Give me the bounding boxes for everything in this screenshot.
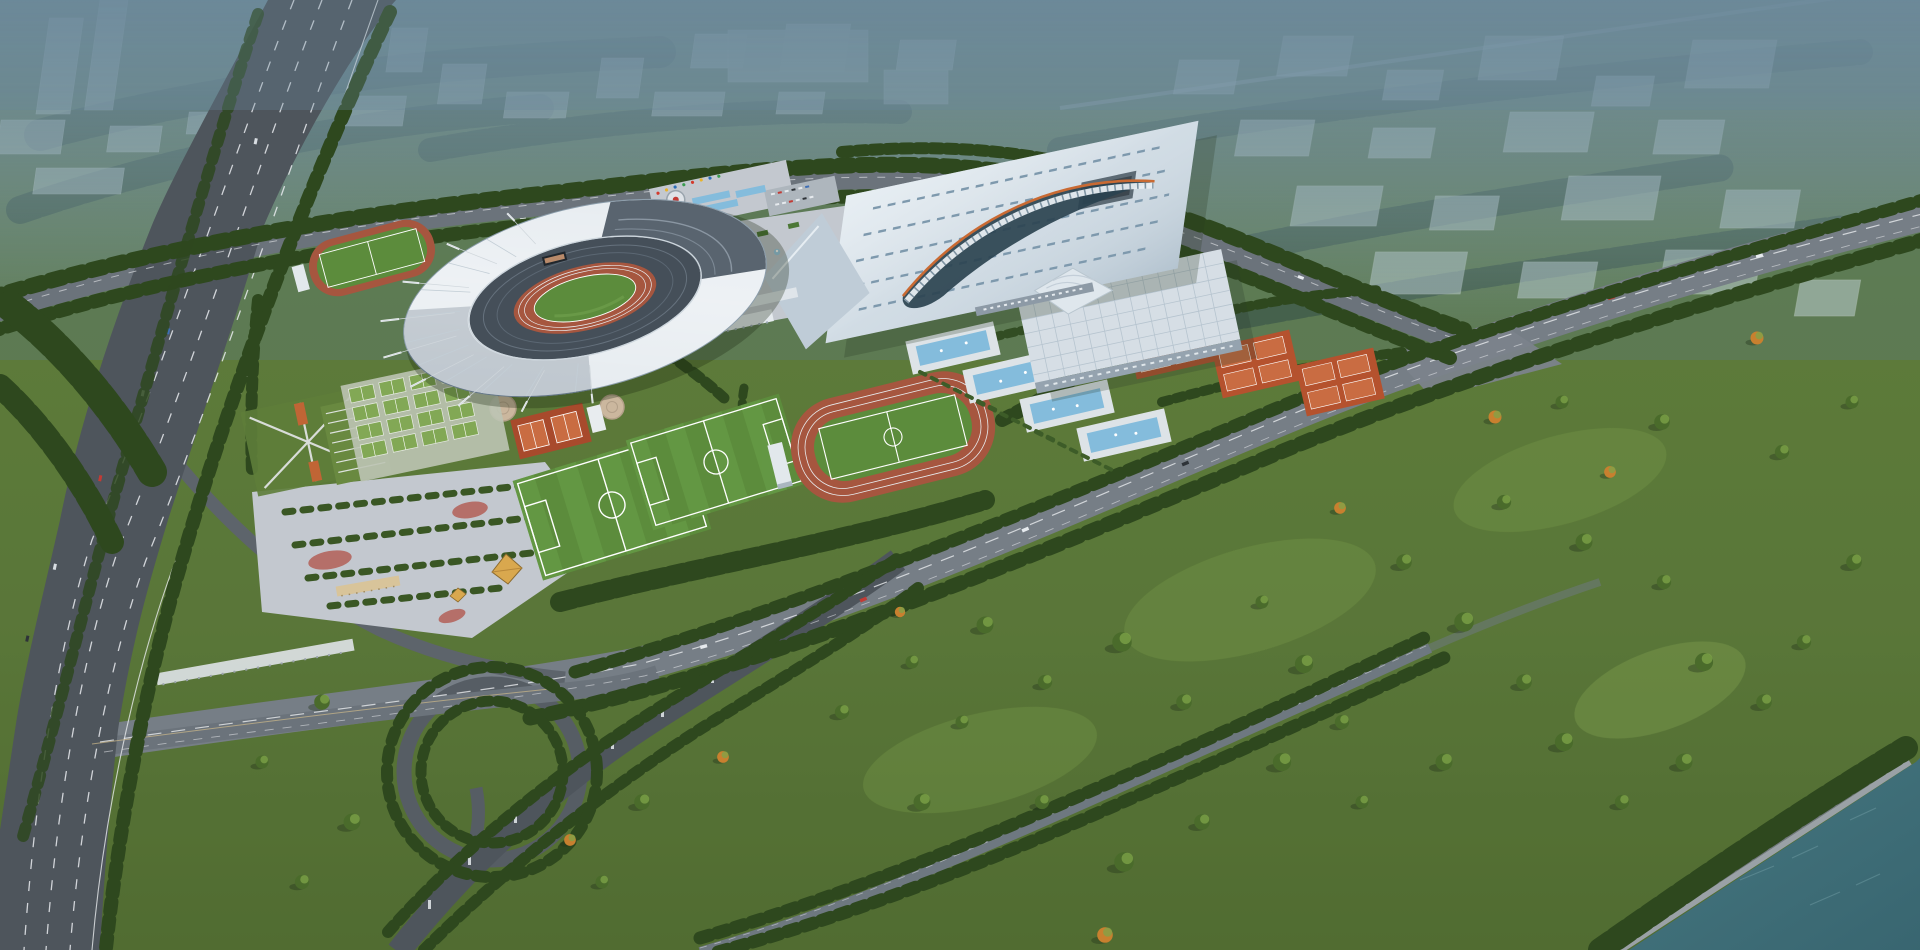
aerial-render-sports-complex	[0, 0, 1920, 950]
render-canvas	[0, 0, 1920, 950]
sky-haze-strip	[0, 0, 1920, 110]
